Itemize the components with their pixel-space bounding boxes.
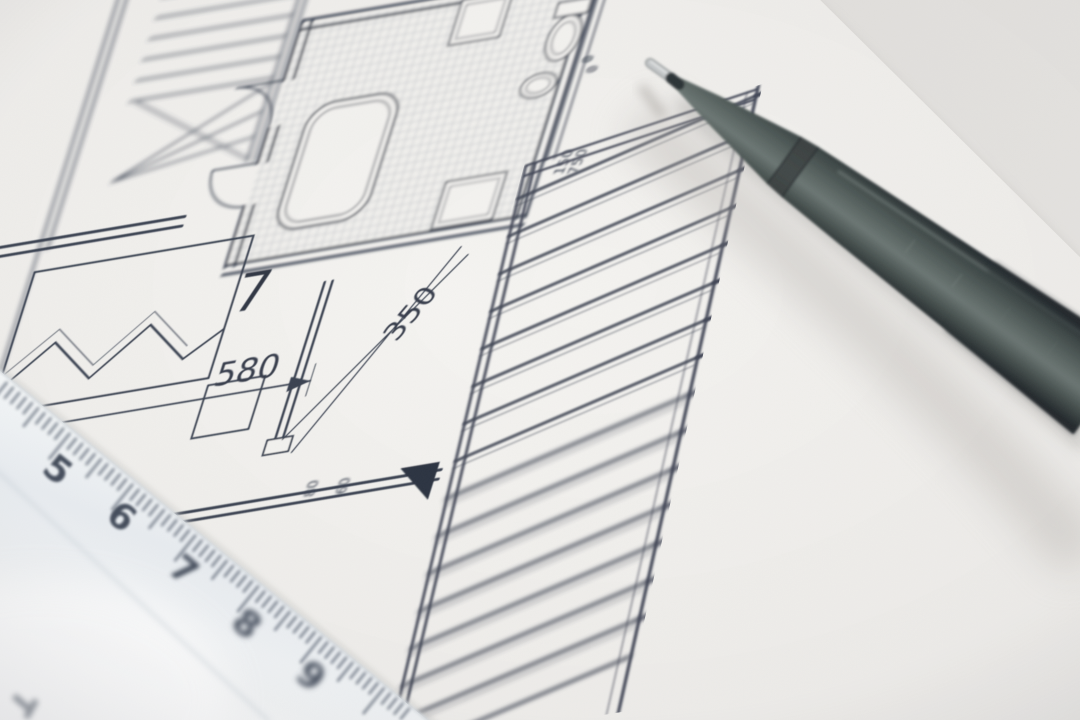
photo-canvas: 580 350 7 150 750 80 60	[0, 0, 1080, 720]
grain-overlay	[0, 0, 1080, 720]
photo-floorplan-scene: 580 350 7 150 750 80 60	[0, 0, 1080, 720]
